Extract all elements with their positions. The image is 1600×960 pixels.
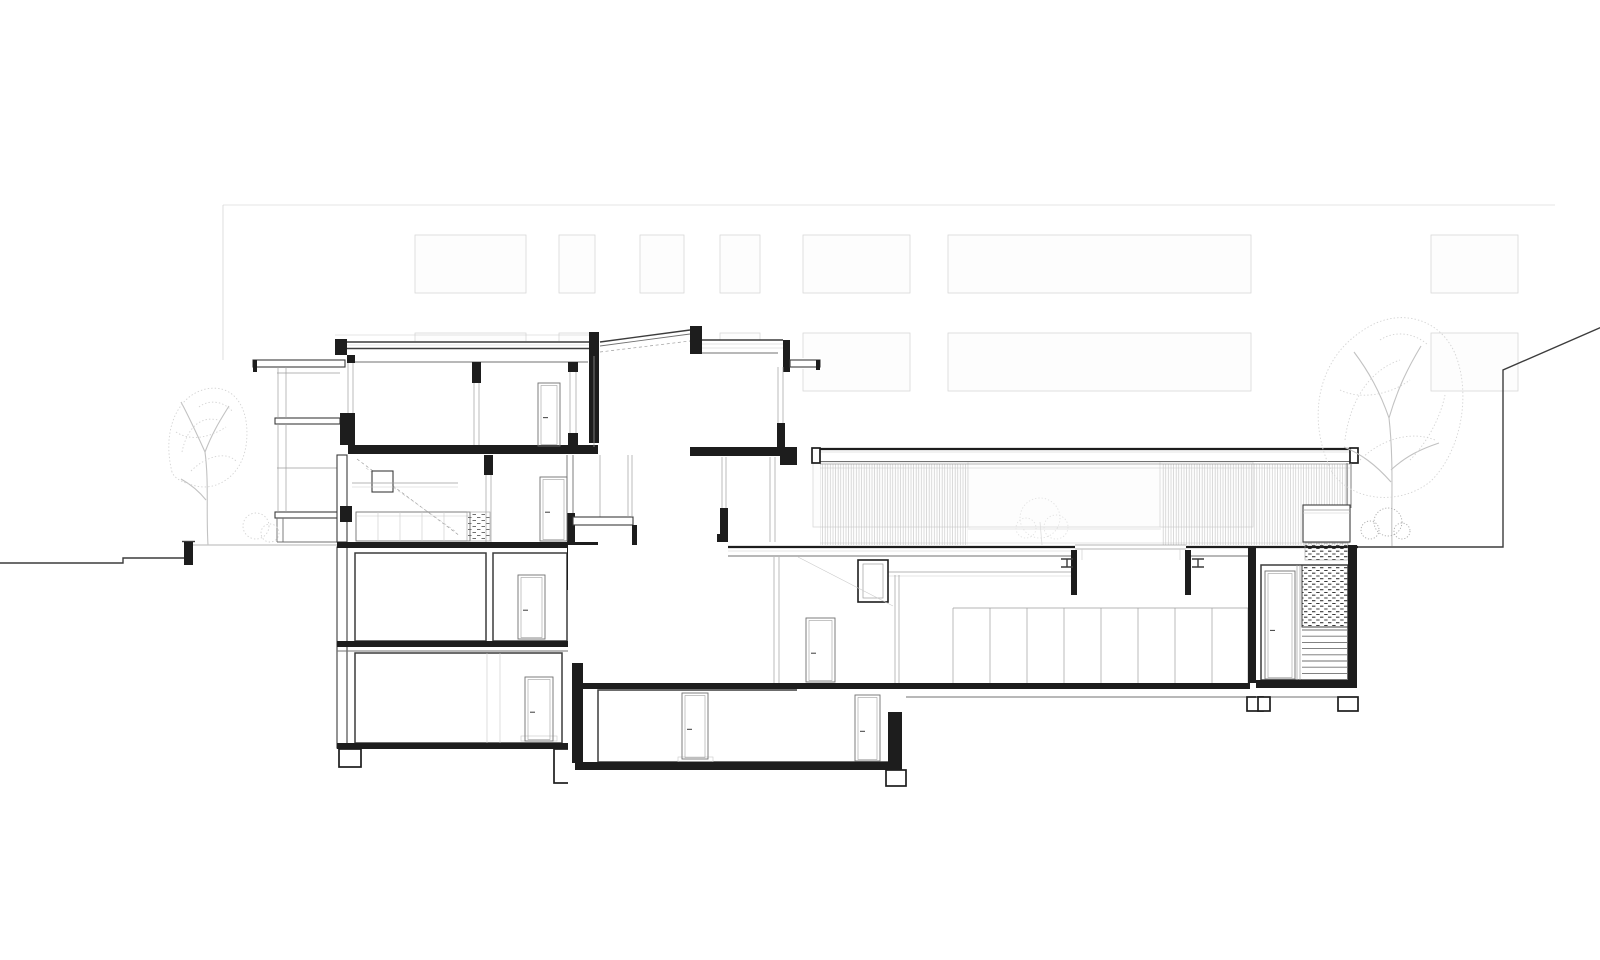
steel-column — [1071, 550, 1077, 595]
facade-window-middle-row-6 — [948, 333, 1251, 391]
hall-roof-upturn — [812, 448, 820, 463]
terrain-left — [0, 542, 277, 566]
canopy-ledge — [790, 360, 820, 367]
roof-parapet-left — [335, 339, 347, 355]
bush-right — [1361, 521, 1379, 539]
facade-window-upper-row-7 — [1431, 235, 1518, 293]
ground-floor-left-wall — [337, 455, 347, 542]
balcony-slab-upper — [275, 418, 340, 424]
upper-floor-slab — [348, 445, 598, 454]
balcony-slab-lower — [275, 512, 340, 518]
foundation-foot — [339, 749, 361, 767]
facade-window-upper-row-5 — [803, 235, 910, 293]
steel-column — [1185, 550, 1191, 595]
partition-header — [472, 362, 481, 383]
tree-left-canopy — [169, 388, 247, 487]
drawing-canvas: Architectural building section Black-and… — [0, 0, 1600, 960]
tower-parapet-right — [783, 340, 790, 372]
foundation-slab-mid — [575, 762, 893, 770]
tower-floor-slab — [690, 447, 797, 456]
lower-slab — [337, 641, 573, 647]
sunken-hall — [728, 448, 1358, 712]
foundation-foot — [1258, 697, 1270, 711]
bush-right — [1374, 508, 1402, 536]
hall-bench-box — [1303, 505, 1350, 542]
gate-post — [184, 542, 193, 565]
foundation-slab-left — [337, 743, 573, 749]
facade-window-upper-row-2 — [559, 235, 595, 293]
section-drawing: Architectural building section Black-and… — [0, 0, 1600, 960]
balcony-roof-slab — [253, 360, 345, 367]
facade-window-hall-backwall-row-2 — [968, 462, 1161, 527]
foundation-foot — [886, 770, 906, 786]
wall-spandrel-block — [340, 413, 355, 445]
facade-window-middle-row-7 — [1431, 333, 1518, 391]
outer-right-wall — [1348, 545, 1357, 688]
hall-right-wall — [1248, 548, 1256, 683]
tree-left — [169, 388, 247, 545]
facade-window-upper-row-6 — [948, 235, 1251, 293]
facade-window-upper-row-1 — [415, 235, 526, 293]
insulation-hatch-block — [1302, 565, 1348, 627]
clerestory-post-right — [690, 326, 702, 354]
insulation-strip — [1305, 543, 1348, 560]
tree-right-trunk — [1344, 346, 1439, 546]
stair-duct-box — [372, 471, 393, 492]
facade-window-upper-row-3 — [640, 235, 684, 293]
foundation-foot — [1338, 697, 1358, 711]
insulation-hatch-small — [467, 512, 490, 541]
stair-landing — [573, 517, 633, 525]
basement-left-wall — [337, 547, 347, 748]
facade-window-upper-row-4 — [720, 235, 760, 293]
ground-line-left — [0, 558, 184, 563]
tree-left-trunk — [181, 402, 229, 545]
hall-glazing-screen — [820, 464, 968, 545]
tree-right-branches — [1340, 334, 1445, 460]
